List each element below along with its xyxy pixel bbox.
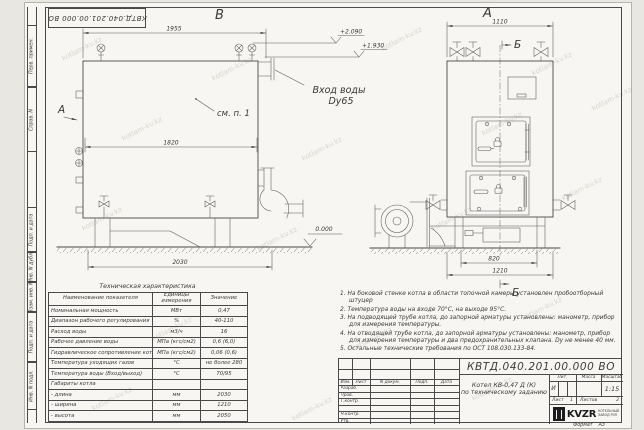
spec-cell: мм [153, 411, 201, 422]
view-b-label: В [215, 8, 224, 23]
spec-cell: 2050 [201, 411, 248, 422]
divider-line [567, 381, 568, 396]
spec-cell: Габариты котла [49, 379, 153, 390]
spec-header-row: Наименование показателя Единицы измерени… [49, 293, 248, 306]
note-5: 5. Остальные технические требования по О… [340, 346, 621, 353]
dim-2030: 2030 [172, 259, 187, 266]
spec-cell: °С [153, 369, 201, 380]
elevation-2090: +2.090 [340, 29, 362, 36]
spec-cell: - ширина [49, 400, 153, 411]
rev-col-ndocum: N докум. [370, 379, 410, 385]
spec-cell: 70/95 [201, 369, 248, 380]
product-name-line1: Котел КВ-0,47 Д (К) [461, 382, 547, 389]
spec-cell: мм [153, 400, 201, 411]
spec-cell: - длина [49, 390, 153, 401]
rev-col-data: Дата [434, 379, 459, 385]
spec-cell: 0,47 [201, 306, 248, 317]
role-razrab: Разраб. [341, 386, 370, 391]
spec-row: - ширинамм1210 [49, 400, 248, 411]
product-name-line2: по техническому заданию [461, 389, 547, 396]
spec-cell: % [153, 316, 201, 327]
logo-caption: КОТЕЛЬНЫЙ ЗАВОД РЭП [598, 410, 619, 418]
spec-table: Наименование показателя Единицы измерени… [48, 292, 248, 422]
spec-cell: Рабочее давление воды [49, 337, 153, 348]
role-utv: Утв. [341, 419, 370, 424]
spec-cell: МПа (кгс/см2) [153, 348, 201, 359]
spec-cell: 0,6 (6,0) [201, 337, 248, 348]
spec-cell [201, 379, 248, 390]
spec-cell: 1210 [201, 400, 248, 411]
dim-1820: 1820 [163, 140, 178, 147]
spec-row: Расход водым3/ч16 [49, 327, 248, 338]
spec-cell: 40-110 [201, 316, 248, 327]
elevation-marks: +2.090 +1.930 [253, 29, 387, 58]
note-2: 2. Температура воды на входе 70°С, на вы… [340, 307, 621, 314]
format-note: Формат А3 [556, 423, 622, 429]
spec-row: - длинамм2030 [49, 390, 248, 401]
dim-1110: 1110 [492, 19, 507, 26]
technical-notes: 1. На боковой стенке котла в области топ… [340, 291, 621, 355]
spec-cell: Расход воды [49, 327, 153, 338]
spec-cell: МВт [153, 306, 201, 317]
spec-row: - высотамм2050 [49, 411, 248, 422]
rev-col-list: Лист [352, 379, 370, 385]
divider-line [558, 381, 559, 396]
view-arrow-a-label: А [57, 104, 65, 116]
spec-row: Температура воды (Вход/выход)°С70/95 [49, 369, 248, 380]
sheet-cell: Лист1 [549, 396, 576, 404]
spec-row: Рабочее давление водыМПа (кгс/см2)0,6 (6… [49, 337, 248, 348]
spec-cell: 2030 [201, 390, 248, 401]
note-4: 4. На отводящей трубе котла, до запорной… [340, 331, 621, 346]
spec-header-units: Единицы измерения [153, 293, 201, 306]
sheet-label: Лист [552, 398, 564, 403]
divider-line [339, 405, 459, 406]
sheets-label: Листов [580, 398, 597, 403]
logo-caption-line2: ЗАВОД РЭП [598, 414, 619, 418]
logo-text: KVZR [567, 409, 596, 420]
technical-characteristics: Техническая характеристика Наименование … [48, 283, 247, 422]
spec-cell: Гидравлическое сопротивление котла [49, 348, 153, 359]
role-prov: Пров. [341, 393, 370, 398]
spec-row: Диапазон рабочего регулирования%40-110 [49, 316, 248, 327]
format-value: А3 [599, 423, 605, 429]
elevation-1930: +1.930 [362, 43, 384, 50]
spec-row: Температура уходящих газов°Сне более 280 [49, 358, 248, 369]
view-a-label: А [482, 6, 492, 21]
spec-cell: Температура воды (Вход/выход) [49, 369, 153, 380]
mass-header: Масса [576, 374, 601, 381]
spec-cell: 0,06 (0,6) [201, 348, 248, 359]
scale-value: 1:15 [601, 381, 623, 396]
spec-header-name: Наименование показателя [49, 293, 153, 306]
callout-see-note-1: см. п. 1 [217, 109, 250, 119]
dim-1955: 1955 [166, 26, 181, 33]
spec-row: Гидравлическое сопротивление котлаМПа (к… [49, 348, 248, 359]
dim-1210: 1210 [492, 268, 507, 275]
manufacturer-logo: KVZR КОТЕЛЬНЫЙ ЗАВОД РЭП [549, 404, 623, 424]
dim-820: 820 [488, 256, 500, 263]
spec-row: Габариты котла [49, 379, 248, 390]
product-name: Котел КВ-0,47 Д (К) по техническому зада… [459, 376, 549, 402]
logo-mark-icon [553, 407, 565, 421]
sheet-value: 1 [570, 398, 573, 403]
role-tkontr: Т.контр. [341, 399, 370, 404]
blueprint-sheet: { "watermark": "kotlam-kv.kz", "stamp": … [0, 0, 644, 430]
spec-header-value: Значение [201, 293, 248, 306]
spec-table-title: Техническая характеристика [48, 283, 247, 290]
sheets-value: 2 [616, 398, 619, 403]
inlet-label-line1: Вход воды [312, 85, 366, 96]
spec-cell: Номинальная мощность [49, 306, 153, 317]
lit-value: И [549, 381, 558, 396]
divider-line [339, 369, 459, 370]
inlet-label-line2: Dy65 [328, 96, 353, 107]
view-a-front-view: А 1110 Б [370, 6, 575, 299]
spec-cell: Температура уходящих газов [49, 358, 153, 369]
title-block: Изм. Лист N докум. Подп. Дата Разраб. Пр… [338, 358, 622, 423]
format-label: Формат [573, 423, 592, 429]
role-nkontr: Н.контр. [341, 412, 370, 417]
spec-cell: °С [153, 358, 201, 369]
spec-cell: мм [153, 390, 201, 401]
elevation-zero: 0.000 [315, 226, 332, 233]
spec-cell: Диапазон рабочего регулирования [49, 316, 153, 327]
spec-cell: МПа (кгс/см2) [153, 337, 201, 348]
spec-cell: не более 280 [201, 358, 248, 369]
section-b-top-label: Б [514, 39, 521, 51]
sheets-cell: Листов2 [576, 396, 623, 404]
rev-col-podp: Подп. [410, 379, 434, 385]
lit-header: Лит. [549, 374, 576, 381]
spec-cell: - высота [49, 411, 153, 422]
spec-row: Номинальная мощностьМВт0,47 [49, 306, 248, 317]
spec-cell: м3/ч [153, 327, 201, 338]
rev-col-izm: Изм. [339, 379, 352, 385]
spec-cell [153, 379, 201, 390]
note-1: 1. На боковой стенке котла в области топ… [340, 291, 621, 306]
spec-cell: 16 [201, 327, 248, 338]
doc-number: КВТД.040.201.00.000 ВО [459, 359, 623, 374]
scale-header: Масштаб [601, 374, 623, 381]
view-b-side-view: В 1955 Вход воды Dy65 см. п. 1 А 1820 [57, 8, 366, 270]
note-3: 3. На подводящей трубе котла, до запорно… [340, 315, 621, 330]
